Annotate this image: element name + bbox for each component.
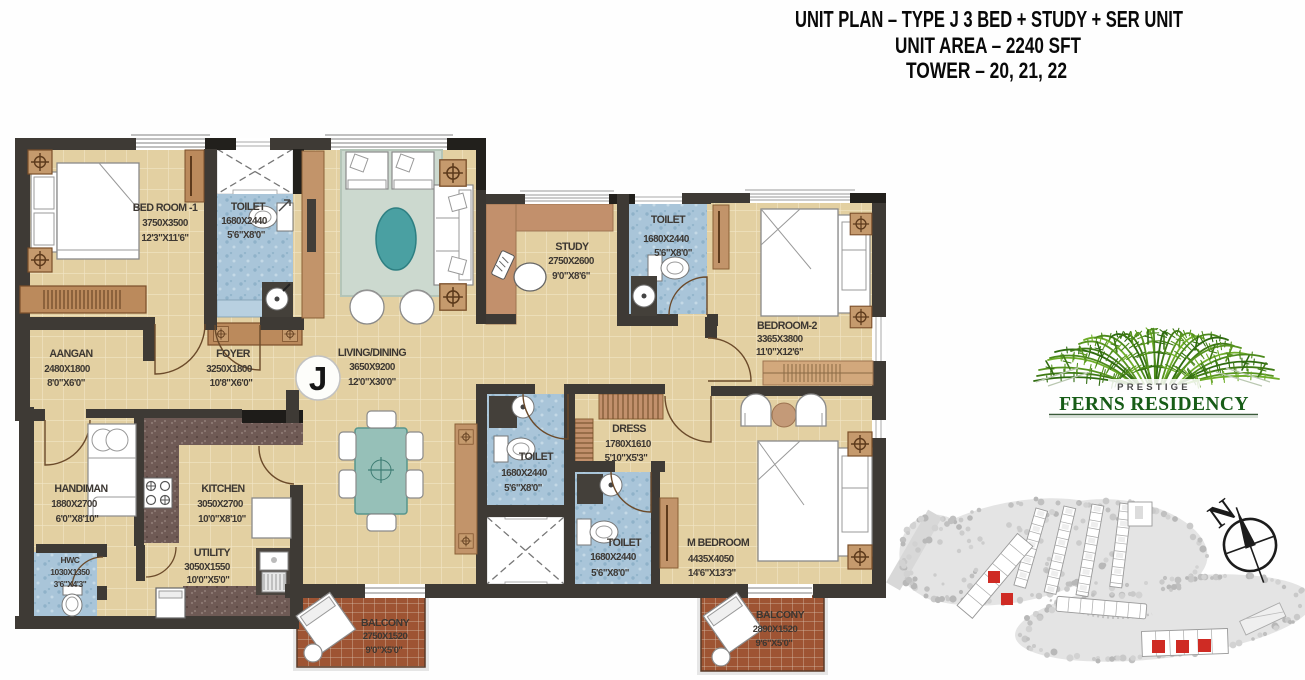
svg-text:3650X9200: 3650X9200 [349,362,396,373]
svg-text:12'0"X30'0": 12'0"X30'0" [348,377,396,388]
svg-text:TOILET: TOILET [519,451,554,463]
svg-text:5'10"X5'3": 5'10"X5'3" [605,453,648,464]
svg-text:TOILET: TOILET [651,214,686,226]
svg-text:BALCONY: BALCONY [361,617,410,629]
svg-text:TOILET: TOILET [231,201,266,213]
svg-text:3050X1550: 3050X1550 [184,562,231,573]
svg-text:5'6"X8'0": 5'6"X8'0" [504,483,542,494]
svg-text:1680X2440: 1680X2440 [501,468,548,479]
svg-text:9'6"X5'0": 9'6"X5'0" [756,638,793,649]
svg-text:LIVING/DINING: LIVING/DINING [338,347,406,359]
svg-text:1780X1610: 1780X1610 [605,439,652,450]
svg-text:5'6"X8'0": 5'6"X8'0" [227,230,265,241]
svg-text:2750X2600: 2750X2600 [548,256,595,267]
svg-text:10'0"X5'0": 10'0"X5'0" [187,575,230,586]
svg-text:3'6"X4'3": 3'6"X4'3" [54,579,87,589]
svg-text:FOYER: FOYER [216,348,251,360]
svg-text:1680X2440: 1680X2440 [643,234,690,245]
svg-text:1680X2440: 1680X2440 [221,216,268,227]
svg-text:11'0"X12'6": 11'0"X12'6" [756,347,803,358]
svg-text:KITCHEN: KITCHEN [201,483,244,495]
svg-text:M BEDROOM: M BEDROOM [687,537,750,549]
svg-text:5'6"X8'0": 5'6"X8'0" [591,568,629,579]
svg-text:J: J [309,360,327,397]
svg-text:2750X1520: 2750X1520 [363,631,408,642]
svg-text:TOILET: TOILET [607,537,642,549]
svg-text:6'0"X8'10": 6'0"X8'10" [56,514,99,525]
svg-text:HWC: HWC [61,555,80,565]
svg-text:4435X4050: 4435X4050 [688,554,735,565]
svg-text:9'0"X8'6": 9'0"X8'6" [552,271,590,282]
svg-text:3365X3800: 3365X3800 [757,334,804,345]
svg-text:TOWER – 20, 21, 22: TOWER – 20, 21, 22 [906,58,1067,83]
svg-text:10'8"X6'0": 10'8"X6'0" [210,378,253,389]
svg-text:UNIT PLAN – TYPE J 3 BED + STU: UNIT PLAN – TYPE J 3 BED + STUDY + SER U… [795,6,1183,32]
svg-text:5'6"X8'0": 5'6"X8'0" [654,248,692,259]
svg-text:2480X1800: 2480X1800 [44,364,91,375]
svg-text:UNIT AREA – 2240 SFT: UNIT AREA – 2240 SFT [895,33,1081,58]
svg-text:9'0"X5'0": 9'0"X5'0" [366,645,403,656]
svg-text:PRESTIGE: PRESTIGE [1117,382,1191,393]
svg-text:12'3"X11'6": 12'3"X11'6" [141,233,188,244]
svg-text:BALCONY: BALCONY [756,609,805,621]
svg-text:10'0"X8'10": 10'0"X8'10" [198,514,246,525]
svg-text:3750X3500: 3750X3500 [142,218,189,229]
svg-text:UTILITY: UTILITY [194,547,231,559]
svg-text:8'0"X6'0": 8'0"X6'0" [47,378,85,389]
svg-text:1680X2440: 1680X2440 [590,552,637,563]
svg-text:3250X1800: 3250X1800 [206,364,253,375]
svg-text:2890X1520: 2890X1520 [753,624,798,635]
svg-text:3050X2700: 3050X2700 [197,499,244,510]
svg-text:1880X2700: 1880X2700 [51,499,98,510]
svg-text:BED ROOM -1: BED ROOM -1 [133,202,198,214]
svg-text:DRESS: DRESS [612,423,646,435]
svg-text:STUDY: STUDY [555,241,589,253]
svg-text:AANGAN: AANGAN [49,348,92,360]
svg-text:FERNS RESIDENCY: FERNS RESIDENCY [1059,394,1249,415]
svg-text:14'6"X13'3": 14'6"X13'3" [688,568,736,579]
svg-text:1030X1350: 1030X1350 [50,567,90,577]
svg-text:HANDIMAN: HANDIMAN [54,483,107,495]
svg-text:BEDROOM-2: BEDROOM-2 [757,320,817,332]
